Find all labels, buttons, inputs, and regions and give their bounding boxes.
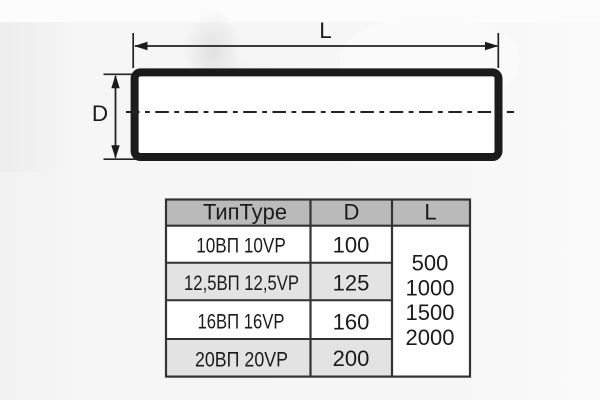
svg-text:20ВП 20VP: 20ВП 20VP (195, 347, 288, 371)
svg-text:200: 200 (333, 346, 370, 371)
svg-text:12,5ВП 12,5VP: 12,5ВП 12,5VP (184, 271, 299, 295)
svg-text:D: D (344, 200, 360, 225)
svg-text:2000: 2000 (406, 325, 455, 350)
svg-text:125: 125 (333, 271, 370, 296)
svg-text:160: 160 (333, 310, 370, 335)
svg-text:1500: 1500 (406, 300, 455, 325)
svg-text:D: D (92, 101, 108, 126)
svg-text:100: 100 (333, 233, 370, 258)
svg-text:16ВП 16VP: 16ВП 16VP (198, 310, 285, 334)
svg-text:L: L (424, 200, 436, 225)
svg-text:500: 500 (412, 251, 449, 276)
svg-text:L: L (319, 18, 332, 43)
svg-text:1000: 1000 (406, 276, 455, 301)
svg-text:ТипType: ТипType (203, 199, 287, 224)
svg-text:10ВП 10VP: 10ВП 10VP (196, 234, 286, 258)
